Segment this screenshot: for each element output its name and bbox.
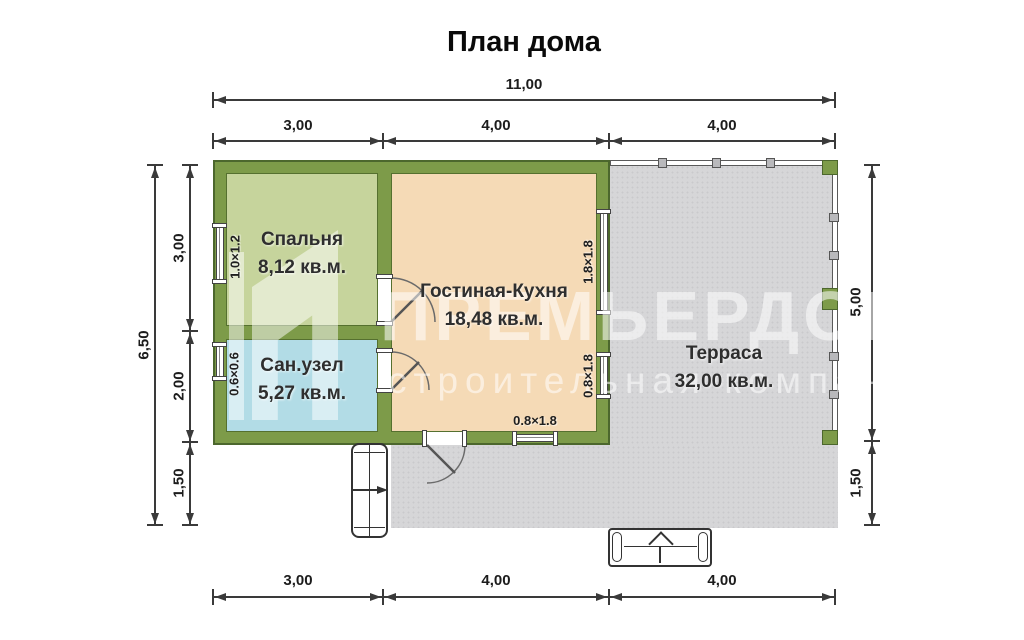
arrow (822, 593, 833, 601)
arrow (385, 137, 396, 145)
arrow (151, 513, 159, 524)
terrace-corner-post (822, 430, 838, 445)
entry-step-cap (698, 532, 708, 562)
tick (147, 164, 163, 166)
window-mullion (517, 437, 553, 438)
window-bottom (516, 434, 554, 442)
tick (182, 441, 198, 443)
arrow (186, 333, 194, 344)
dim-label: 6,50 (136, 330, 153, 359)
window-bedroom (216, 227, 224, 280)
dim-label: 3,00 (283, 572, 312, 589)
room-area: 8,12 кв.м. (226, 254, 378, 282)
tick (147, 524, 163, 526)
door-jamb (376, 348, 393, 353)
arrow (611, 137, 622, 145)
tick (382, 133, 384, 149)
arrow (370, 137, 381, 145)
tick (182, 330, 198, 332)
tick (182, 164, 198, 166)
room-area: 5,27 кв.м. (226, 380, 378, 408)
window-living-small (600, 356, 608, 395)
room-area: 32,00 кв.м. (610, 368, 838, 396)
door-opening-entrance (425, 432, 465, 445)
railing-post (712, 158, 721, 168)
dim-line (871, 165, 873, 525)
tick (834, 589, 836, 605)
room-label-bathroom: Сан.узел 5,27 кв.м. (226, 352, 378, 408)
window-label: 1.8×1.8 (581, 240, 596, 284)
tick (212, 92, 214, 108)
dim-label: 1,50 (171, 468, 188, 497)
railing-post (658, 158, 667, 168)
dim-line (189, 165, 191, 525)
entry-step-cap (612, 532, 622, 562)
arrow (186, 167, 194, 178)
room-label-living-kitchen: Гостиная-Кухня 18,48 кв.м. (391, 278, 597, 334)
tick (608, 589, 610, 605)
arrow (385, 593, 396, 601)
dim-label: 4,00 (707, 572, 736, 589)
window-label: 0.8×1.8 (581, 354, 596, 398)
tick (864, 524, 880, 526)
arrow (186, 319, 194, 330)
dim-line (154, 165, 156, 525)
arrow (370, 593, 381, 601)
railing-post (829, 251, 839, 260)
tick (834, 92, 836, 108)
dim-label: 4,00 (481, 572, 510, 589)
terrace-corner-post (822, 160, 838, 175)
arrow (822, 96, 833, 104)
arrow (596, 593, 607, 601)
room-label-bedroom: Спальня 8,12 кв.м. (226, 226, 378, 282)
dim-label: 2,00 (171, 371, 188, 400)
dim-label: 1,50 (848, 468, 865, 497)
deck-area (391, 445, 838, 528)
door-jamb (422, 430, 427, 447)
window-cap (553, 431, 558, 446)
floor-plan-canvas: План дома 11,00 3,00 4,00 4,00 6,50 (0, 0, 1024, 640)
window-mullion (219, 228, 220, 279)
step-arrow-tail (659, 546, 661, 563)
window-mullion (219, 347, 220, 376)
terrace-railing-top (610, 160, 838, 166)
door-jamb (376, 388, 393, 393)
arrow (611, 593, 622, 601)
window-cap (212, 376, 227, 381)
door-opening-bedroom (378, 278, 391, 322)
arrow (215, 593, 226, 601)
window-mullion (603, 214, 604, 310)
tick (382, 589, 384, 605)
dim-label: 5,00 (848, 287, 865, 316)
window-cap (212, 279, 227, 284)
tick (182, 524, 198, 526)
tick (212, 133, 214, 149)
dim-label: 3,00 (171, 233, 188, 262)
arrow (151, 167, 159, 178)
arrow (186, 430, 194, 441)
dim-line (213, 99, 835, 101)
tick (864, 440, 880, 442)
window-living-large (600, 213, 608, 311)
arrow (215, 96, 226, 104)
dim-line (213, 140, 835, 142)
page-title: План дома (213, 26, 835, 59)
arrow (822, 137, 833, 145)
dim-label: 4,00 (481, 117, 510, 134)
dim-line (213, 596, 835, 598)
dim-label: 11,00 (506, 76, 543, 93)
room-label-terrace: Терраса 32,00 кв.м. (610, 340, 838, 396)
window-bathroom (216, 346, 224, 377)
arrow (596, 137, 607, 145)
railing-post (766, 158, 775, 168)
tick (608, 133, 610, 149)
tick (864, 164, 880, 166)
tick (212, 589, 214, 605)
room-name: Терраса (610, 340, 838, 368)
room-name: Сан.узел (226, 352, 378, 380)
arrow (868, 513, 876, 524)
window-cap (596, 310, 611, 315)
arrow (868, 443, 876, 454)
room-name: Спальня (226, 226, 378, 254)
arrow (215, 137, 226, 145)
dim-label: 3,00 (283, 117, 312, 134)
arrow (186, 444, 194, 455)
arrow (868, 429, 876, 440)
tick (834, 133, 836, 149)
window-label: 1.0×1.2 (228, 235, 243, 279)
window-cap (512, 431, 517, 446)
door-opening-bathroom (378, 352, 391, 390)
stair-arrow (377, 486, 388, 494)
arrow (186, 513, 194, 524)
window-cap (596, 394, 611, 399)
room-name: Гостиная-Кухня (391, 278, 597, 306)
terrace-mid-post (822, 288, 838, 310)
railing-post (829, 213, 839, 222)
room-area: 18,48 кв.м. (391, 306, 597, 334)
door-jamb (462, 430, 467, 447)
window-label: 0.6×0.6 (227, 352, 242, 396)
room-terrace (610, 160, 838, 445)
window-mullion (603, 357, 604, 394)
arrow (868, 167, 876, 178)
dim-label: 4,00 (707, 117, 736, 134)
window-label: 0.8×1.8 (513, 413, 557, 428)
